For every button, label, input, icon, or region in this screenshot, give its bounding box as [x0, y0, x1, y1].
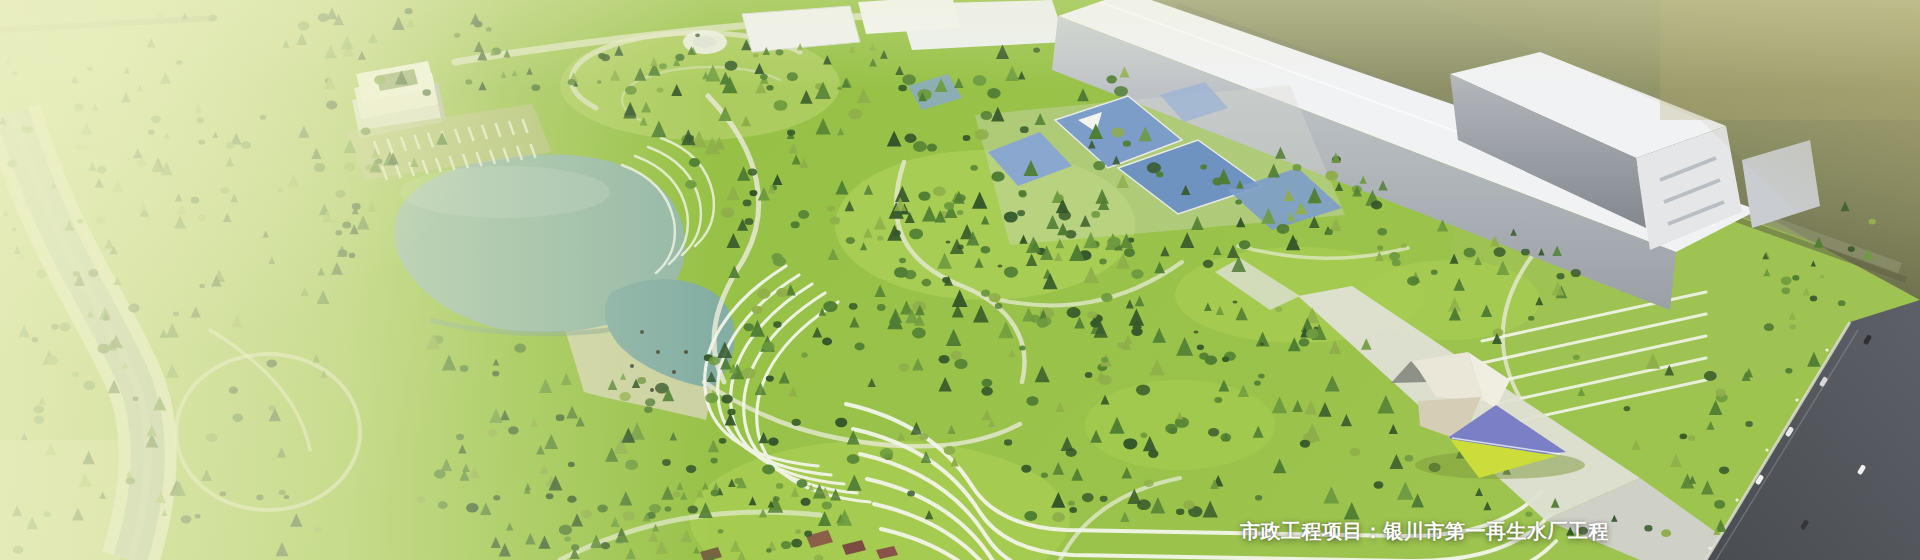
aerial-rendering — [0, 0, 1920, 560]
hero-banner: 市政工程项目：银川市第一再生水厂工程 — [0, 0, 1920, 560]
project-caption: 市政工程项目：银川市第一再生水厂工程 — [1240, 520, 1609, 542]
